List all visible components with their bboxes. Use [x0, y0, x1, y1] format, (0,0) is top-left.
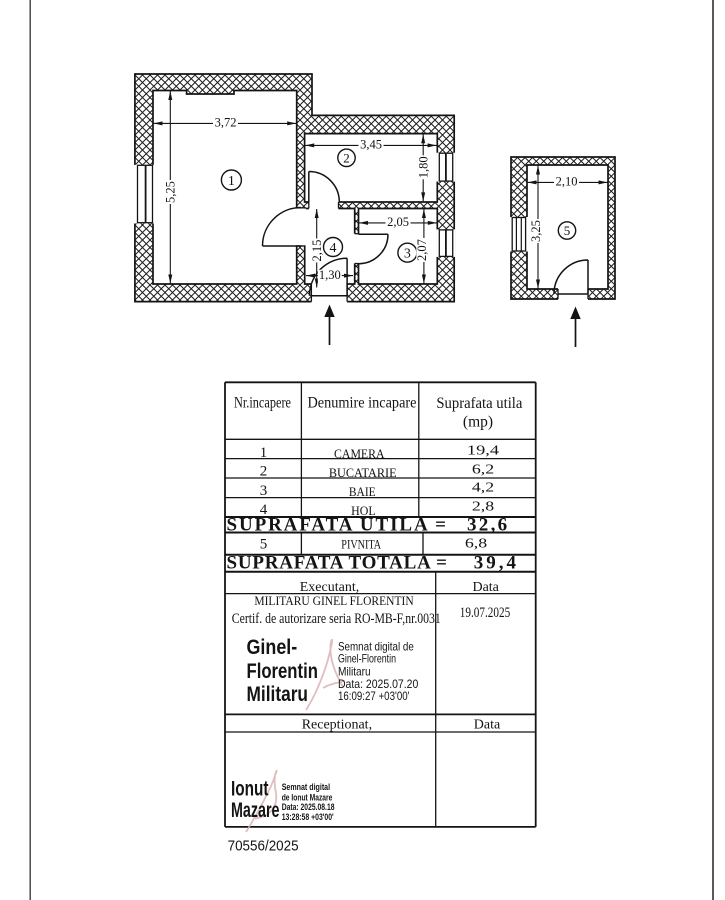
svg-text:de Ionut Mazare: de Ionut Mazare — [282, 792, 333, 802]
svg-text:2: 2 — [260, 464, 268, 480]
svg-text:Denumire incapare: Denumire incapare — [308, 395, 417, 412]
svg-text:Receptionat,: Receptionat, — [302, 718, 372, 733]
svg-text:5: 5 — [260, 537, 268, 553]
svg-text:Nr.incapere: Nr.incapere — [234, 395, 291, 412]
svg-text:Data: Data — [474, 718, 501, 733]
svg-text:Ionut: Ionut — [231, 778, 269, 801]
svg-text:2: 2 — [343, 150, 350, 165]
svg-text:32,6: 32,6 — [467, 514, 507, 535]
svg-text:6,2: 6,2 — [472, 462, 494, 477]
svg-text:16:09:27 +03'00': 16:09:27 +03'00' — [338, 689, 410, 703]
svg-text:Mazare: Mazare — [231, 799, 280, 822]
svg-text:SUPRAFATA UTILA =: SUPRAFATA UTILA = — [227, 514, 447, 535]
svg-text:19.07.2025: 19.07.2025 — [460, 605, 511, 621]
svg-text:CAMERA: CAMERA — [334, 446, 385, 461]
svg-text:19,4: 19,4 — [467, 444, 499, 459]
svg-text:BAIE: BAIE — [349, 484, 376, 499]
svg-text:Militaru: Militaru — [247, 683, 309, 706]
svg-text:1: 1 — [228, 174, 235, 189]
svg-text:PIVNITA: PIVNITA — [341, 537, 381, 552]
svg-text:5: 5 — [564, 223, 571, 238]
svg-text:Data: Data — [472, 580, 499, 595]
svg-text:3,72: 3,72 — [215, 116, 237, 130]
svg-text:(mp): (mp) — [463, 414, 493, 431]
svg-text:MILITARU GINEL FLORENTIN: MILITARU GINEL FLORENTIN — [254, 593, 414, 608]
svg-text:Suprafata utila: Suprafata utila — [436, 395, 522, 412]
svg-text:Data: 2025.08.18: Data: 2025.08.18 — [282, 802, 335, 812]
svg-text:6,8: 6,8 — [465, 537, 487, 552]
svg-text:2,07: 2,07 — [415, 239, 429, 261]
svg-text:2,15: 2,15 — [310, 240, 324, 262]
svg-text:3,45: 3,45 — [360, 138, 382, 152]
svg-text:Ginel-: Ginel- — [247, 636, 298, 659]
svg-text:5,25: 5,25 — [163, 181, 177, 203]
svg-text:1,30: 1,30 — [319, 268, 341, 282]
svg-text:3: 3 — [404, 247, 411, 262]
svg-text:4: 4 — [330, 241, 337, 256]
svg-text:70556/2025: 70556/2025 — [228, 839, 299, 855]
svg-text:1,80: 1,80 — [416, 156, 430, 178]
svg-text:4,2: 4,2 — [472, 481, 494, 496]
svg-text:3: 3 — [260, 483, 268, 499]
svg-text:2,8: 2,8 — [472, 499, 494, 514]
svg-text:Certif. de autorizare seria RO: Certif. de autorizare seria RO-MB-F,nr.0… — [232, 611, 441, 627]
svg-text:Florentin: Florentin — [247, 660, 318, 683]
svg-text:Semnat digital: Semnat digital — [282, 782, 330, 792]
svg-text:2,05: 2,05 — [387, 215, 409, 229]
svg-text:39,4: 39,4 — [474, 552, 517, 573]
svg-text:SUPRAFATA TOTALA =: SUPRAFATA TOTALA = — [227, 552, 447, 573]
svg-text:BUCATARIE: BUCATARIE — [329, 465, 397, 480]
svg-text:3,25: 3,25 — [529, 220, 543, 242]
svg-text:2,10: 2,10 — [556, 175, 578, 189]
svg-text:1: 1 — [260, 445, 268, 461]
svg-text:13:28:58 +03'00': 13:28:58 +03'00' — [282, 812, 334, 822]
